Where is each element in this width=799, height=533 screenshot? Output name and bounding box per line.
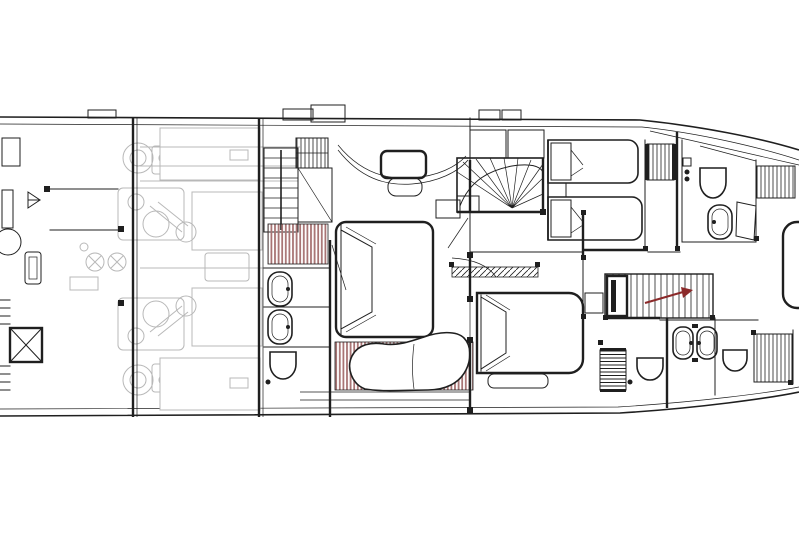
linen-locker [600,348,626,392]
yacht-deck-plan [0,0,799,533]
shower-floor [268,224,328,264]
entry-step [452,267,538,277]
canvas-background [0,0,799,533]
shower-floor-vip [754,334,792,382]
hanging-locker-twin [645,144,676,180]
deck-plan-svg [0,0,799,533]
hanging-locker [296,138,328,168]
shower-floor-forward [757,166,795,198]
